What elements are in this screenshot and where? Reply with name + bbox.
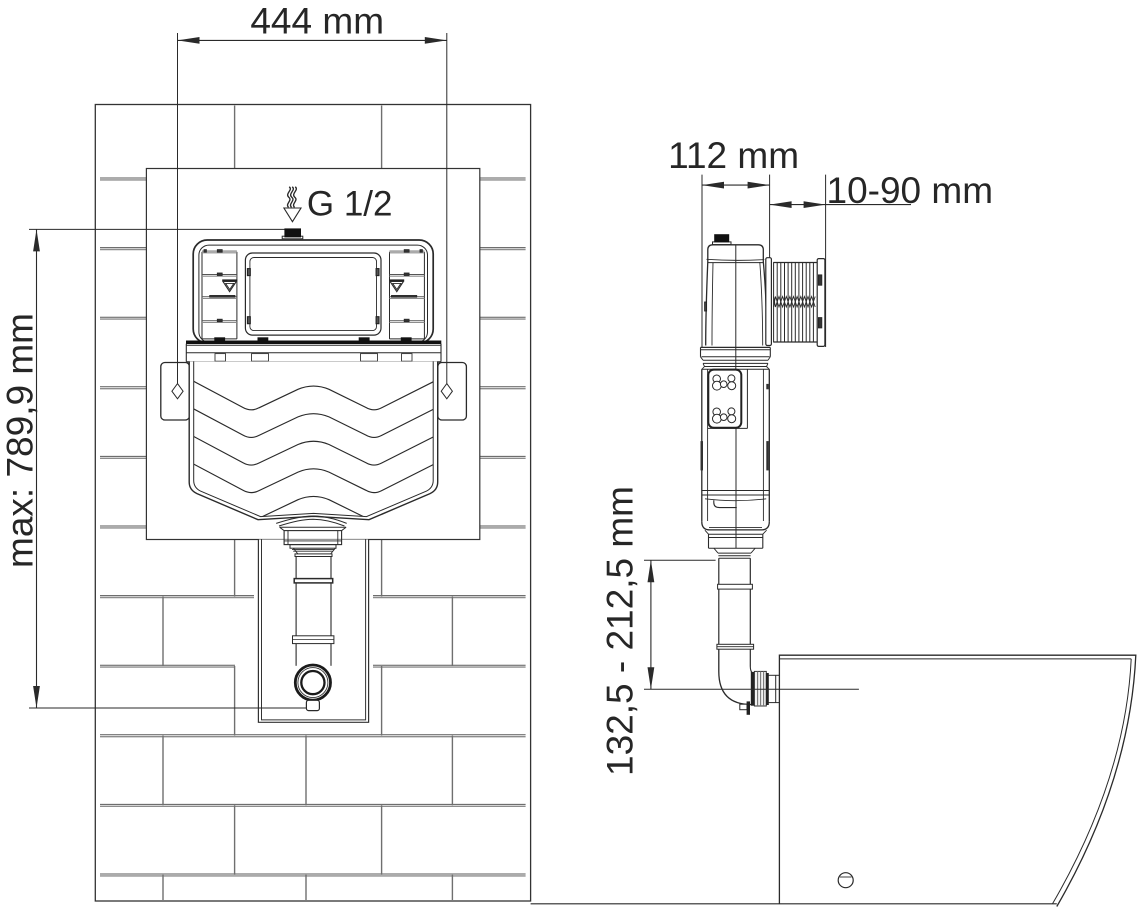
svg-text:max: 789,9 mm: max: 789,9 mm [0,313,41,568]
svg-text:444 mm: 444 mm [250,1,384,42]
svg-text:132,5 - 212,5 mm: 132,5 - 212,5 mm [600,486,641,776]
svg-text:G 1/2: G 1/2 [307,184,393,223]
svg-text:112 mm: 112 mm [668,135,799,176]
